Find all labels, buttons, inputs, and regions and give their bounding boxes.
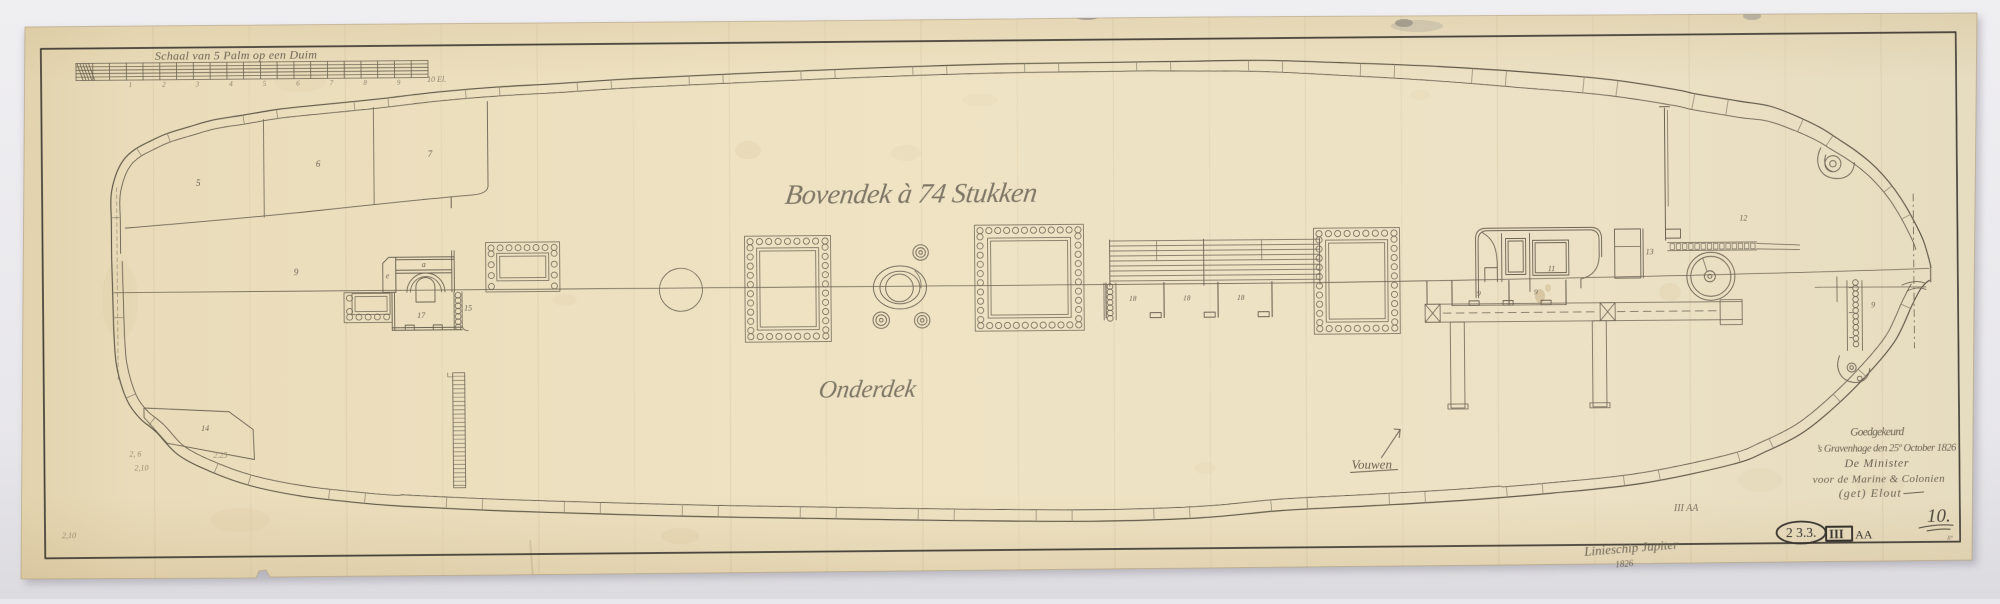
svg-text:Rª: Rª [1946, 536, 1953, 542]
svg-text:9: 9 [294, 267, 299, 277]
svg-text:18: 18 [1183, 293, 1191, 302]
svg-text:12: 12 [1739, 213, 1747, 222]
svg-text:AA: AA [1855, 527, 1873, 541]
svg-text:9: 9 [1871, 300, 1875, 309]
svg-text:17: 17 [417, 311, 426, 320]
svg-text:8: 8 [363, 79, 367, 87]
svg-text:1826: 1826 [1615, 558, 1634, 569]
svg-text:a: a [422, 260, 426, 269]
svg-text:voor de Marine & Colonien: voor de Marine & Colonien [1813, 473, 1946, 486]
svg-text:7: 7 [330, 79, 334, 87]
svg-text:15: 15 [464, 304, 472, 313]
svg-text:2 3.3.: 2 3.3. [1786, 525, 1817, 540]
svg-text:3: 3 [195, 80, 200, 88]
svg-text:9: 9 [397, 79, 401, 87]
svg-text:Goedgekeurd: Goedgekeurd [1850, 426, 1904, 438]
svg-text:9: 9 [1477, 289, 1481, 298]
svg-text:18: 18 [1129, 294, 1137, 303]
svg-text:’s Gravenhage den 25º October: ’s Gravenhage den 25º October 1826 [1816, 443, 1957, 455]
svg-text:2.25: 2.25 [213, 451, 227, 460]
svg-text:2,10: 2,10 [134, 463, 148, 472]
svg-text:5: 5 [196, 178, 201, 188]
svg-text:5: 5 [263, 80, 267, 88]
svg-text:4: 4 [229, 80, 233, 88]
svg-text:2: 2 [162, 81, 166, 89]
svg-text:e: e [386, 271, 390, 280]
svg-text:13: 13 [1646, 247, 1654, 256]
svg-text:Vouwen: Vouwen [1351, 457, 1392, 472]
svg-text:6: 6 [296, 80, 300, 88]
svg-text:14: 14 [201, 424, 209, 433]
svg-text:Schaal van 5 Palm op een Duim: Schaal van 5 Palm op een Duim [155, 47, 317, 62]
svg-text:1: 1 [129, 81, 133, 89]
svg-text:De Minister: De Minister [1843, 456, 1908, 471]
svg-text:7: 7 [428, 149, 433, 159]
svg-text:6: 6 [316, 159, 321, 169]
svg-text:11: 11 [1548, 264, 1555, 273]
svg-text:III AA: III AA [1673, 503, 1700, 514]
svg-text:10 El.: 10 El. [427, 75, 446, 84]
svg-text:2,10: 2,10 [62, 531, 76, 540]
svg-text:2, 6: 2, 6 [129, 449, 141, 458]
svg-text:18: 18 [1237, 293, 1245, 302]
svg-text:9: 9 [1534, 287, 1538, 296]
svg-text:Bovendek à 74 Stukken: Bovendek à 74 Stukken [783, 178, 1039, 211]
svg-text:Onderdek: Onderdek [817, 376, 918, 404]
svg-text:III: III [1829, 527, 1844, 541]
svg-text:(get) Elout: (get) Elout [1839, 486, 1902, 501]
svg-text:10.: 10. [1927, 506, 1951, 527]
